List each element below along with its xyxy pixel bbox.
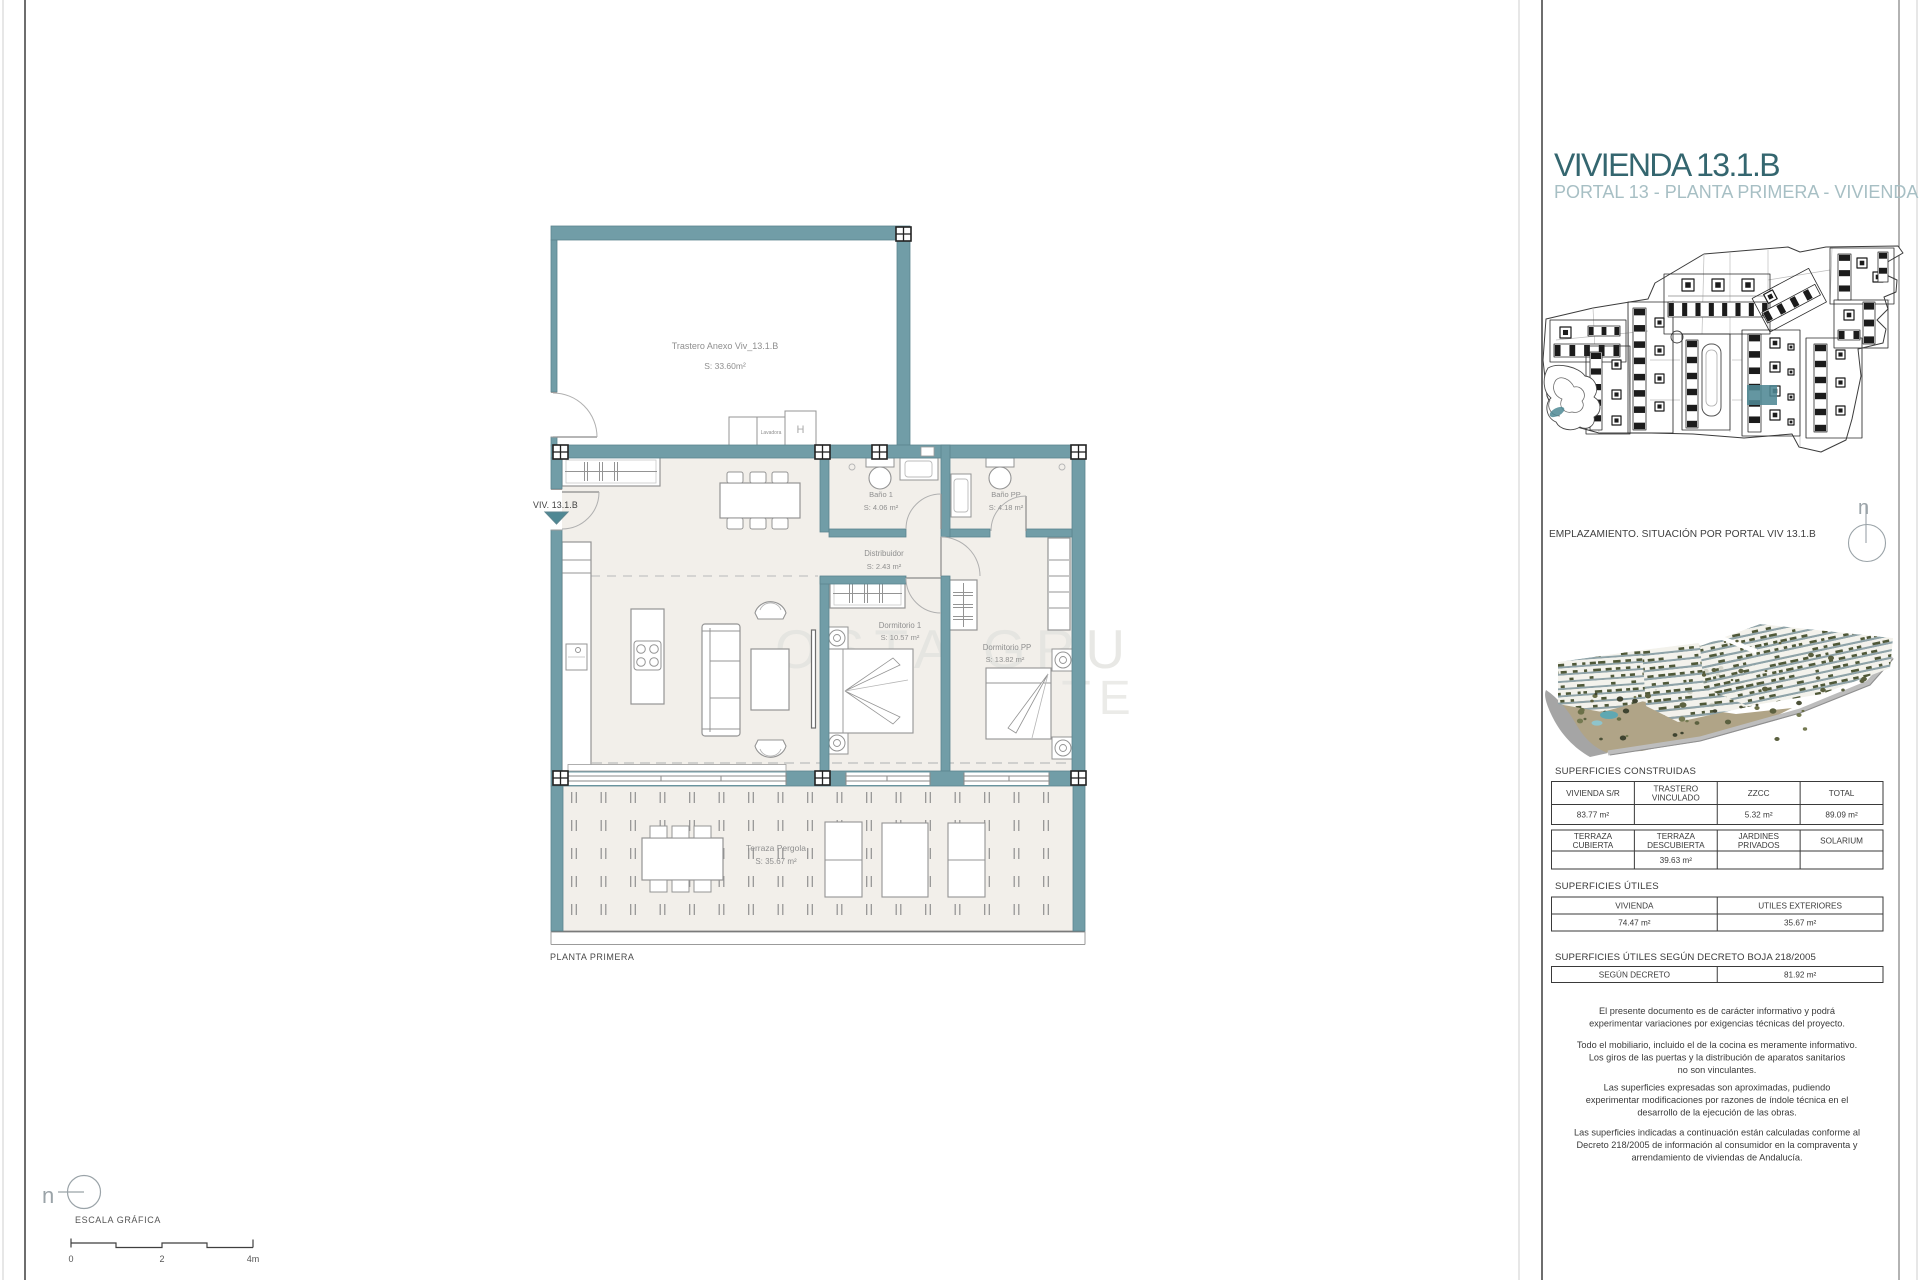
svg-text:S: 10.57 m²: S: 10.57 m² [881,633,920,642]
svg-text:Todo el mobiliario, incluido e: Todo el mobiliario, incluido el de la co… [1577,1040,1857,1050]
svg-text:no son vinculantes.: no son vinculantes. [1678,1065,1757,1075]
svg-text:Decreto 218/2005 de informaci: Decreto 218/2005 de información al consu… [1577,1140,1858,1150]
svg-text:JARDINES: JARDINES [1738,832,1779,841]
svg-text:H: H [797,424,805,436]
svg-text:83.77 m²: 83.77 m² [1577,811,1610,820]
svg-text:Baño 1: Baño 1 [869,490,893,499]
svg-text:2: 2 [159,1254,164,1264]
svg-text:Las superficies indicadas a co: Las superficies indicadas a continuación… [1574,1128,1860,1138]
svg-text:Trastero Anexo Viv_13.1.B: Trastero Anexo Viv_13.1.B [672,341,779,351]
svg-text:5.32 m²: 5.32 m² [1745,811,1773,820]
svg-text:VIVIENDA S/R: VIVIENDA S/R [1566,789,1620,798]
svg-text:EMPLAZAMIENTO. SITUACIÓN POR P: EMPLAZAMIENTO. SITUACIÓN POR PORTAL VIV … [1549,527,1816,540]
svg-text:S: 4.18 m²: S: 4.18 m² [989,503,1024,512]
svg-text:CUBIERTA: CUBIERTA [1573,841,1614,850]
svg-text:35.67 m²: 35.67 m² [1784,919,1817,928]
svg-text:SOLARIUM: SOLARIUM [1820,837,1863,846]
svg-text:n: n [42,1183,54,1208]
svg-text:S: 2.43 m²: S: 2.43 m² [867,562,902,571]
svg-text:39.63 m²: 39.63 m² [1660,856,1693,865]
svg-text:SUPERFICIES ÚTILES SEGÚN DECRE: SUPERFICIES ÚTILES SEGÚN DECRETO BOJA 21… [1555,952,1816,963]
svg-text:experimentar variaciones por e: experimentar variaciones por exigencias … [1589,1019,1845,1029]
svg-text:Terraza Pergola: Terraza Pergola [746,843,806,853]
svg-text:81.92 m²: 81.92 m² [1784,971,1817,980]
svg-text:Los giros de las puertas y la: Los giros de las puertas y la distribuci… [1589,1053,1846,1063]
svg-text:VIVIENDA 13.1.B: VIVIENDA 13.1.B [1554,147,1779,183]
svg-text:DESCUBIERTA: DESCUBIERTA [1647,841,1705,850]
svg-text:PRIVADOS: PRIVADOS [1738,841,1780,850]
svg-text:SUPERFICIES CONSTRUIDAS: SUPERFICIES CONSTRUIDAS [1555,766,1696,777]
svg-text:PORTAL 13 - PLANTA PRIMERA - V: PORTAL 13 - PLANTA PRIMERA - VIVIENDA B [1554,182,1920,202]
svg-text:Las superficies expresadas son: Las superficies expresadas son aproximad… [1604,1083,1831,1093]
svg-text:VIVIENDA: VIVIENDA [1615,902,1654,911]
svg-text:SUPERFICIES ÚTILES: SUPERFICIES ÚTILES [1555,881,1659,892]
svg-text:El presente documento es de ca: El presente documento es de carácter inf… [1599,1006,1836,1016]
svg-text:4m: 4m [247,1254,260,1264]
svg-text:S: 4.06 m²: S: 4.06 m² [864,503,899,512]
svg-text:TRASTERO: TRASTERO [1654,785,1699,794]
svg-text:Dormitorio 1: Dormitorio 1 [879,621,921,630]
svg-text:UTILES EXTERIORES: UTILES EXTERIORES [1758,902,1842,911]
svg-text:SEGÚN DECRETO: SEGÚN DECRETO [1599,970,1670,980]
svg-text:S: 35.67 m²: S: 35.67 m² [755,857,797,866]
svg-text:n: n [1858,497,1869,519]
svg-text:arrendamiento de viviendas de: arrendamiento de viviendas de Andalucía. [1631,1153,1802,1163]
svg-text:VIV. 13.1.B: VIV. 13.1.B [533,500,578,510]
svg-text:desarrollo de la ejecución de: desarrollo de la ejecución de las obras. [1637,1108,1796,1118]
svg-text:74.47 m²: 74.47 m² [1618,919,1651,928]
svg-text:Lavadora: Lavadora [761,430,782,436]
svg-text:Distribuidor: Distribuidor [864,549,904,558]
svg-text:S: 33.60m²: S: 33.60m² [704,361,746,371]
svg-text:TERRAZA: TERRAZA [1574,832,1613,841]
svg-text:89.09 m²: 89.09 m² [1825,811,1858,820]
svg-text:0: 0 [68,1254,73,1264]
svg-text:S: 13.82 m²: S: 13.82 m² [986,655,1025,664]
svg-text:Dormitorio PP: Dormitorio PP [983,643,1032,652]
svg-text:PLANTA PRIMERA: PLANTA PRIMERA [550,952,634,962]
svg-text:TOTAL: TOTAL [1829,789,1855,798]
svg-text:TERRAZA: TERRAZA [1657,832,1696,841]
svg-text:ZZCC: ZZCC [1748,789,1770,798]
svg-text:experimentar modificaciones po: experimentar modificaciones por razones … [1586,1095,1849,1105]
svg-text:ESCALA GRÁFICA: ESCALA GRÁFICA [75,1215,161,1225]
svg-text:VINCULADO: VINCULADO [1652,794,1700,803]
